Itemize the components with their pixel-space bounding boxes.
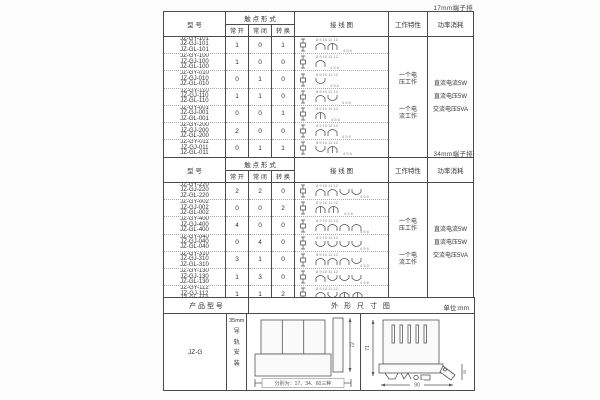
changeover-count: 0 bbox=[272, 54, 295, 71]
wiring-diagram-cell: 8 9 10 11 12 4 5 6 bbox=[295, 234, 389, 251]
mounting-type-cell: 35mm 导轨安装 bbox=[227, 314, 247, 390]
model-number: JZ-GL-010 bbox=[164, 82, 225, 87]
model-cell: JZ-GY-002JZ-GJ-002JZ-GL-002 bbox=[164, 200, 226, 217]
model-number: JZ-GL-200 bbox=[164, 134, 225, 139]
changeover-count: 0 bbox=[272, 88, 295, 105]
wiring-diagram: 8 9 10 11 12 4 5 6 bbox=[296, 183, 388, 199]
power-consumption-text: 直流电流5W bbox=[428, 224, 473, 237]
power-consumption-text: 直流电压5W bbox=[428, 237, 473, 250]
mounting-label: 导轨安装 bbox=[233, 327, 240, 369]
model-cell: JZ-GY-200JZ-GJ-200JZ-GL-200 bbox=[164, 123, 226, 140]
normally-closed-count: 3 bbox=[249, 269, 272, 286]
power-consumption-text: 直流电压5W bbox=[428, 91, 473, 104]
wiring-diagram-cell: 8 9 10 11 12 4 5 6 bbox=[295, 37, 389, 54]
wiring-diagram-cell: 8 9 10 11 12 4 5 6 bbox=[295, 217, 389, 234]
svg-text:4 5 6: 4 5 6 bbox=[330, 83, 340, 88]
model-cell: JZ-GY-011JZ-GJ-011JZ-GL-011 bbox=[164, 140, 226, 157]
col-changeover: 转 换 bbox=[272, 171, 295, 183]
power-consumption-text: 交流电压5VA bbox=[428, 250, 473, 263]
changeover-count: 1 bbox=[272, 140, 295, 157]
model-number: JZ-GL-400 bbox=[164, 228, 225, 233]
svg-text:4 5 6: 4 5 6 bbox=[330, 65, 340, 70]
front-view-svg: 72 分别为：17、34、60三种 bbox=[247, 314, 360, 390]
normally-open-count: 4 bbox=[226, 217, 249, 234]
wiring-diagram-cell: 8 9 10 11 12 4 5 6 bbox=[295, 54, 389, 71]
normally-closed-count: 0 bbox=[249, 217, 272, 234]
normally-closed-count: 1 bbox=[249, 88, 272, 105]
changeover-count: 1 bbox=[272, 105, 295, 122]
wiring-diagram: 8 9 10 11 12 4 5 6 bbox=[296, 89, 388, 105]
normally-open-count: 1 bbox=[226, 269, 249, 286]
col-normally-open: 常 开 bbox=[226, 171, 249, 183]
normally-open-count: 0 bbox=[226, 234, 249, 251]
wiring-diagram: 8 9 10 11 12 4 5 6 bbox=[296, 252, 388, 268]
col-model: 型 号 bbox=[164, 158, 226, 183]
power-consumption-cell: 直流电流5W直流电压5W交流电压5VA bbox=[428, 37, 474, 158]
wiring-diagram: 8 9 10 11 12 4 5 6 bbox=[296, 54, 388, 70]
col-wiring-diagram: 接 线 图 bbox=[295, 158, 389, 183]
svg-text:4 5 6: 4 5 6 bbox=[343, 48, 353, 53]
col-working-characteristic: 工作特性 bbox=[389, 158, 428, 183]
svg-text:8 9 10 11 12: 8 9 10 11 12 bbox=[316, 123, 339, 128]
normally-open-count: 0 bbox=[226, 140, 249, 157]
front-height-dim: 72 bbox=[350, 342, 356, 348]
svg-text:8 9 10 11 12: 8 9 10 11 12 bbox=[316, 269, 339, 274]
outline-table-header: 产 品 型 号 外 形 尺 寸 图 单位:mm bbox=[164, 298, 474, 314]
svg-text:4 5 6: 4 5 6 bbox=[342, 134, 352, 139]
datasheet-page: 17mm端子排 型 号 触 点 形 式 接 线 图 工作特性 功率消耗 常 开 … bbox=[0, 0, 600, 400]
svg-text:4 5 6: 4 5 6 bbox=[342, 100, 352, 105]
model-number: JZ-GL-310 bbox=[164, 263, 225, 268]
changeover-count: 2 bbox=[272, 200, 295, 217]
model-cell: JZ-GY-101JZ-GJ-101JZ-GL-101 bbox=[164, 37, 226, 54]
svg-text:8 9 10 11 12: 8 9 10 11 12 bbox=[316, 54, 339, 59]
col-outline-drawing: 外 形 尺 寸 图 单位:mm bbox=[249, 298, 474, 313]
working-characteristic-cell: 一个电压工作一个电流工作 bbox=[389, 37, 428, 158]
wiring-diagram-cell: 8 9 10 11 12 4 5 6 bbox=[295, 269, 389, 286]
model-number: JZ-GL-220 bbox=[164, 194, 225, 199]
normally-closed-count: 0 bbox=[249, 200, 272, 217]
wiring-diagram-cell: 8 9 10 11 12 4 5 6 bbox=[295, 88, 389, 105]
normally-closed-count: 1 bbox=[249, 251, 272, 268]
svg-text:8 9 10 11 12: 8 9 10 11 12 bbox=[316, 89, 339, 94]
contact-table-34mm: 型 号 触 点 形 式 接 线 图 工作特性 功率消耗 常 开 常 闭 转 换 … bbox=[163, 157, 474, 304]
changeover-count: 0 bbox=[272, 251, 295, 268]
power-consumption-text: 交流电压5VA bbox=[428, 104, 473, 117]
side-view-drawing: 71 35 bbox=[361, 314, 474, 390]
model-cell: JZ-GY-100JZ-GJ-100JZ-GL-100 bbox=[164, 54, 226, 71]
model-number: JZ-GL-011 bbox=[164, 151, 225, 156]
wiring-diagram: 8 9 10 11 12 4 5 6 bbox=[296, 200, 388, 216]
svg-text:8 9 10 11 12: 8 9 10 11 12 bbox=[316, 235, 339, 240]
wiring-diagram: 8 9 10 11 12 4 5 6 bbox=[296, 72, 388, 88]
normally-closed-count: 1 bbox=[249, 71, 272, 88]
wiring-diagram-cell: 8 9 10 11 12 4 5 6 bbox=[295, 200, 389, 217]
side-view-svg: 71 35 bbox=[361, 314, 474, 390]
normally-closed-count: 0 bbox=[249, 105, 272, 122]
outline-drawing-title: 外 形 尺 寸 图 bbox=[331, 301, 392, 311]
model-cell: JZ-GY-001JZ-GJ-001JZ-GL-001 bbox=[164, 105, 226, 122]
normally-open-count: 2 bbox=[226, 183, 249, 200]
changeover-count: 1 bbox=[272, 37, 295, 54]
svg-text:8 9 10 11 12: 8 9 10 11 12 bbox=[316, 183, 339, 188]
svg-text:4 5 6: 4 5 6 bbox=[343, 151, 353, 156]
normally-open-count: 3 bbox=[226, 251, 249, 268]
col-changeover: 转 换 bbox=[272, 25, 295, 37]
svg-text:8 9 10 11 12: 8 9 10 11 12 bbox=[316, 106, 339, 111]
unit-label: 单位:mm bbox=[443, 302, 469, 312]
col-contact-form: 触 点 形 式 bbox=[226, 158, 295, 171]
outline-dimension-table: 产 品 型 号 外 形 尺 寸 图 单位:mm JZ-G 35mm 导轨安装 bbox=[163, 297, 475, 391]
svg-text:4 5 6: 4 5 6 bbox=[331, 117, 341, 122]
normally-open-count: 1 bbox=[226, 37, 249, 54]
side-depth-dim: 35 bbox=[462, 369, 467, 374]
svg-text:8 9 10 11 12: 8 9 10 11 12 bbox=[316, 252, 339, 257]
svg-text:8 9 10 11 12: 8 9 10 11 12 bbox=[316, 218, 339, 223]
front-view-drawing: 72 分别为：17、34、60三种 bbox=[247, 314, 361, 390]
changeover-count: 0 bbox=[272, 183, 295, 200]
working-characteristic-text: 一个电流工作 bbox=[397, 253, 419, 267]
contact-table-17mm: 型 号 触 点 形 式 接 线 图 工作特性 功率消耗 常 开 常 闭 转 换 … bbox=[163, 11, 474, 158]
svg-text:4 5 6: 4 5 6 bbox=[344, 211, 354, 216]
normally-open-count: 0 bbox=[226, 105, 249, 122]
model-cell: JZ-GY-130JZ-GJ-130JZ-GL-130 bbox=[164, 269, 226, 286]
wiring-diagram: 8 9 10 11 12 4 5 6 bbox=[296, 269, 388, 285]
model-number: JZ-GL-110 bbox=[164, 99, 225, 104]
working-characteristic-text: 一个电压工作 bbox=[397, 219, 419, 233]
model-number: JZ-GL-100 bbox=[164, 65, 225, 70]
working-characteristic-text: 一个电流工作 bbox=[397, 107, 419, 121]
col-power-consumption: 功率消耗 bbox=[428, 158, 474, 183]
svg-text:8 9 10 11 12: 8 9 10 11 12 bbox=[316, 72, 339, 77]
col-wiring-diagram: 接 线 图 bbox=[295, 12, 389, 37]
normally-closed-count: 0 bbox=[249, 54, 272, 71]
side-width-dim: 90 bbox=[414, 383, 420, 389]
changeover-count: 0 bbox=[272, 71, 295, 88]
wiring-diagram: 8 9 10 11 12 4 5 6 bbox=[296, 123, 388, 139]
changeover-count: 0 bbox=[272, 123, 295, 140]
mounting-size: 35mm bbox=[229, 318, 244, 324]
power-consumption-cell: 直流电流5W直流电压5W交流电压5VA bbox=[428, 183, 474, 304]
changeover-count: 0 bbox=[272, 269, 295, 286]
col-normally-closed: 常 闭 bbox=[249, 25, 272, 37]
col-power-consumption: 功率消耗 bbox=[428, 12, 474, 37]
svg-text:8 9 10 11 12: 8 9 10 11 12 bbox=[316, 286, 339, 291]
wiring-diagram-cell: 8 9 10 11 12 4 5 6 bbox=[295, 251, 389, 268]
product-model-value: JZ-G bbox=[164, 314, 227, 390]
wiring-diagram-cell: 8 9 10 11 12 4 5 6 bbox=[295, 140, 389, 157]
svg-text:4 5 6: 4 5 6 bbox=[360, 229, 370, 234]
col-model: 型 号 bbox=[164, 12, 226, 37]
normally-closed-count: 4 bbox=[249, 234, 272, 251]
working-characteristic-cell: 一个电压工作一个电流工作 bbox=[389, 183, 428, 304]
wiring-diagram: 8 9 10 11 12 4 5 6 bbox=[296, 218, 388, 234]
width-variants-caption: 分别为：17、34、60三种 bbox=[275, 380, 332, 387]
wiring-diagram: 8 9 10 11 12 4 5 6 bbox=[296, 140, 388, 156]
svg-text:4 5 6: 4 5 6 bbox=[360, 280, 370, 285]
wiring-diagram: 8 9 10 11 12 4 5 6 bbox=[296, 235, 388, 251]
col-product-model: 产 品 型 号 bbox=[164, 298, 249, 313]
normally-open-count: 1 bbox=[226, 54, 249, 71]
outline-table-row: JZ-G 35mm 导轨安装 72 bbox=[164, 314, 474, 390]
model-cell: JZ-GY-110JZ-GJ-110JZ-GL-110 bbox=[164, 88, 226, 105]
model-cell: JZ-GY-220JZ-GJ-220JZ-GL-220 bbox=[164, 183, 226, 200]
wiring-diagram: 8 9 10 11 12 4 5 6 bbox=[296, 106, 388, 122]
normally-open-count: 0 bbox=[226, 71, 249, 88]
wiring-diagram: 8 9 10 11 12 4 5 6 bbox=[296, 37, 388, 53]
normally-open-count: 1 bbox=[226, 88, 249, 105]
power-consumption-text: 直流电流5W bbox=[428, 78, 473, 91]
model-cell: JZ-GY-040JZ-GJ-040JZ-GL-040 bbox=[164, 234, 226, 251]
normally-closed-count: 0 bbox=[249, 123, 272, 140]
model-number: JZ-GL-130 bbox=[164, 280, 225, 285]
normally-closed-count: 1 bbox=[249, 140, 272, 157]
normally-closed-count: 0 bbox=[249, 37, 272, 54]
normally-closed-count: 2 bbox=[249, 183, 272, 200]
changeover-count: 0 bbox=[272, 234, 295, 251]
col-working-characteristic: 工作特性 bbox=[389, 12, 428, 37]
svg-text:8 9 10 11 12: 8 9 10 11 12 bbox=[316, 37, 339, 42]
wiring-diagram-cell: 8 9 10 11 12 4 5 6 bbox=[295, 71, 389, 88]
wiring-diagram-cell: 8 9 10 11 12 4 5 6 bbox=[295, 183, 389, 200]
model-number: JZ-GL-001 bbox=[164, 117, 225, 122]
col-contact-form: 触 点 形 式 bbox=[226, 12, 295, 25]
side-height-dim: 71 bbox=[365, 345, 371, 351]
svg-text:4 5 6: 4 5 6 bbox=[360, 246, 370, 251]
table-row: JZ-GY-220JZ-GJ-220JZ-GL-220220 8 9 10 11… bbox=[164, 183, 474, 200]
normally-open-count: 0 bbox=[226, 200, 249, 217]
col-normally-closed: 常 闭 bbox=[249, 171, 272, 183]
normally-open-count: 2 bbox=[226, 123, 249, 140]
model-number: JZ-GL-101 bbox=[164, 48, 225, 53]
svg-text:8 9 10 11 12: 8 9 10 11 12 bbox=[316, 200, 339, 205]
model-number: JZ-GL-002 bbox=[164, 211, 225, 216]
model-cell: JZ-GY-310JZ-GJ-310JZ-GL-310 bbox=[164, 251, 226, 268]
wiring-diagram-cell: 8 9 10 11 12 4 5 6 bbox=[295, 105, 389, 122]
working-characteristic-text: 一个电压工作 bbox=[397, 73, 419, 87]
svg-text:8 9 10 11 12: 8 9 10 11 12 bbox=[316, 140, 339, 145]
model-number: JZ-GL-040 bbox=[164, 245, 225, 250]
svg-text:4 5 6: 4 5 6 bbox=[360, 263, 370, 268]
wiring-diagram-cell: 8 9 10 11 12 4 5 6 bbox=[295, 123, 389, 140]
changeover-count: 0 bbox=[272, 217, 295, 234]
svg-text:4 5 6: 4 5 6 bbox=[360, 194, 370, 199]
table-row: JZ-GY-101JZ-GJ-101JZ-GL-101101 8 9 10 11… bbox=[164, 37, 474, 54]
model-cell: JZ-GY-010JZ-GJ-010JZ-GL-010 bbox=[164, 71, 226, 88]
model-cell: JZ-GY-400JZ-GJ-400JZ-GL-400 bbox=[164, 217, 226, 234]
col-normally-open: 常 开 bbox=[226, 25, 249, 37]
